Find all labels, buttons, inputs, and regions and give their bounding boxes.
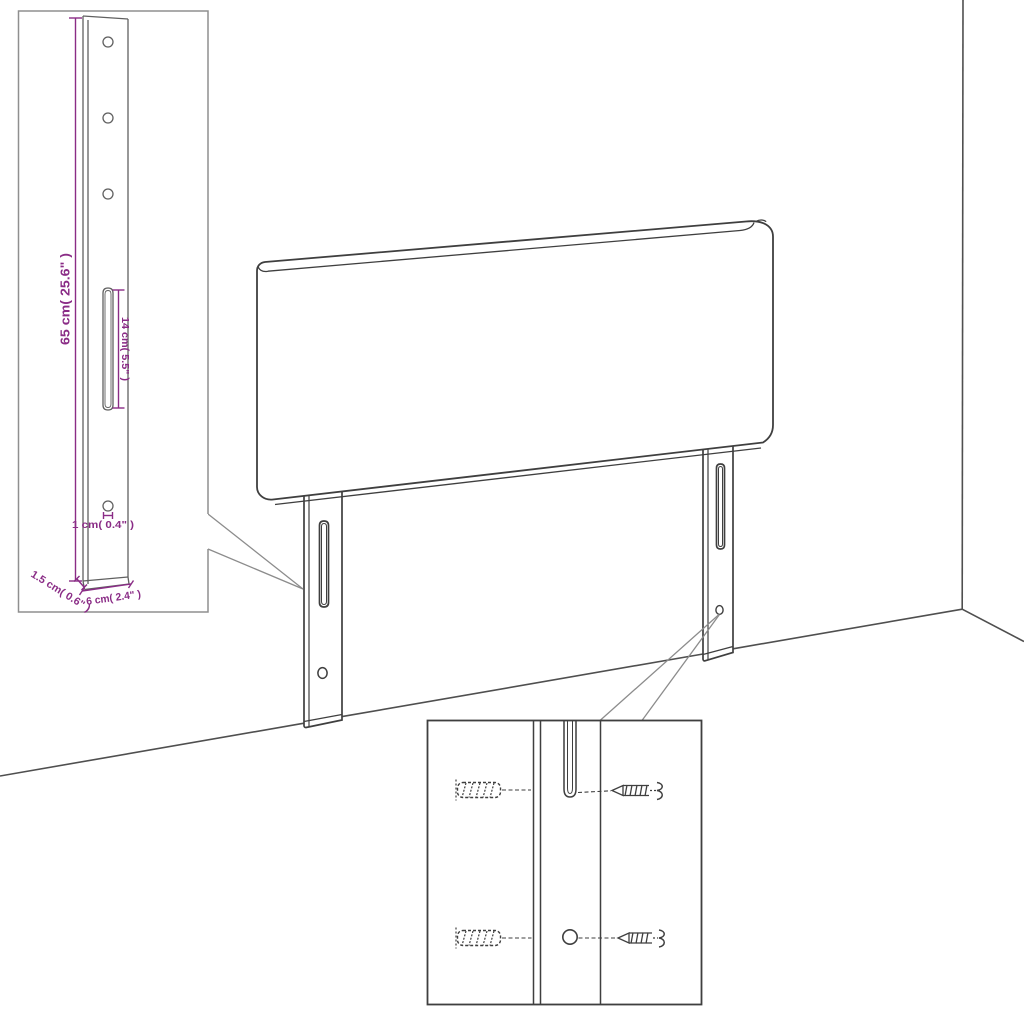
panel-outline [257,221,773,499]
leg-callout-lines [208,514,303,589]
headboard-panel [257,220,773,505]
mounting-callout-line-2 [642,615,720,721]
mounting-detail-inset [428,721,702,1005]
leg-callout-line-2 [208,549,303,589]
dim-slot-label: 14 cm( 5.5" ) [119,317,131,381]
floor-line-left-2 [342,654,703,717]
headboard-dimension-diagram: 65 cm( 25.6" ) 14 cm( 5.5" ) 1 cm( 0.4" … [0,0,1024,1024]
leg-callout-line-1 [208,514,303,589]
floor-line-left-3 [733,609,962,649]
floor-line-right [962,609,1024,641]
dim-hole-label: 1 cm( 0.4" ) [72,519,134,531]
wall-corner-line [962,0,963,609]
leg-detail-inset: 65 cm( 25.6" ) 14 cm( 5.5" ) 1 cm( 0.4" … [19,11,209,615]
mounting-callout-lines [600,615,720,721]
dim-height-label: 65 cm( 25.6" ) [58,253,73,345]
floor-line-left-1 [0,723,304,776]
diagram-canvas: 65 cm( 25.6" ) 14 cm( 5.5" ) 1 cm( 0.4" … [0,0,1024,1024]
mounting-callout-line-1 [600,615,719,721]
